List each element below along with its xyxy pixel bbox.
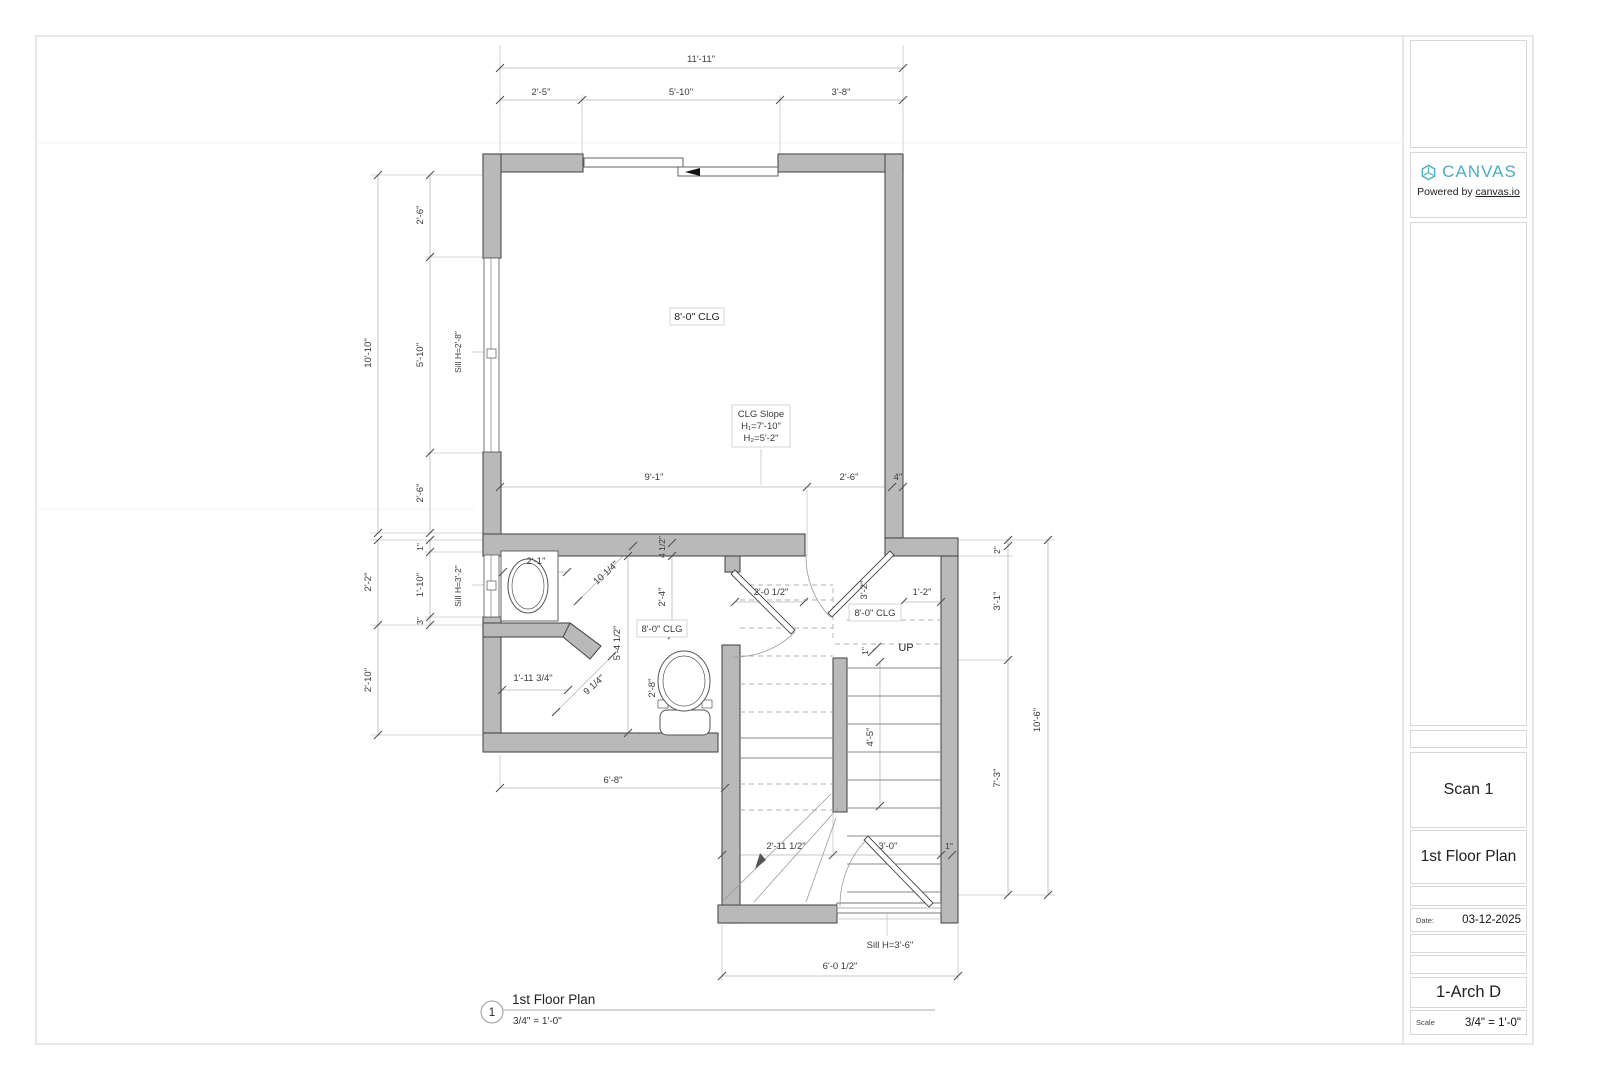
dim-toilet-w: 2'-8": [647, 679, 658, 698]
panel-sheet-title: 1st Floor Plan: [1410, 830, 1527, 884]
dim-top-a: 2'-5": [532, 87, 551, 98]
wall-angled: [563, 623, 601, 659]
dim-mid-b: 2'-6": [840, 472, 859, 483]
label-sill-left-upper: Sill H=2'-8": [453, 331, 463, 373]
sheet-title-text: 1st Floor Plan: [1421, 848, 1517, 866]
dim-bot-b: 3'-0": [879, 841, 898, 852]
dim-right-a: 2": [992, 546, 1002, 554]
drawing-scale: 3/4" = 1'-0": [513, 1016, 562, 1027]
dim-ll-c: 3": [415, 617, 425, 625]
wall-bottom: [718, 905, 837, 923]
dim-left-total: 10'-10": [363, 338, 374, 367]
label-clg-slope-h2: H₂=5'-2": [743, 433, 778, 444]
scale-value: 3/4" = 1'-0": [1465, 1017, 1521, 1029]
wall-left-a: [483, 154, 501, 258]
wall-door-stub: [725, 556, 740, 572]
dim-mid-a: 9'-1": [645, 472, 664, 483]
dim-bath-v-a: 2'-4": [657, 588, 668, 607]
label-clg-bath: 8'-0" CLG: [641, 624, 682, 635]
dim-bath-w: 1'-11 3/4": [513, 673, 552, 684]
label-clg-slope-title: CLG Slope: [738, 409, 784, 420]
window-bottom: [837, 903, 941, 919]
dim-right-total: 10'-6": [1032, 708, 1043, 732]
dim-hall-jamb: 1'-2": [913, 587, 932, 598]
label-clg-hall: 8'-0" CLG: [854, 608, 895, 619]
wall-corner: [885, 538, 958, 556]
label-clg-slope-h1: H₁=7'-10": [741, 421, 781, 432]
dim-bot-right-jamb: 1": [945, 841, 953, 851]
drawing-number: 1: [489, 1007, 495, 1019]
panel-row-spacer-3: [1410, 934, 1527, 953]
brand-name: CANVAS: [1442, 162, 1517, 182]
dim-top-b: 5'-10": [669, 87, 693, 98]
panel-row-spacer-4: [1410, 955, 1527, 974]
sheet-number-text: 1-Arch D: [1436, 983, 1501, 1002]
stair-arrowhead: [755, 853, 766, 869]
panel-sheet-number: 1-Arch D: [1410, 977, 1527, 1008]
panel-sheet-name: Scan 1: [1410, 752, 1527, 828]
dim-bath-counter: 2'-1": [527, 556, 546, 567]
panel-row-spacer-1: [1410, 730, 1527, 748]
powered-prefix: Powered by: [1417, 186, 1475, 198]
dim-ll-total-a: 2'-2": [363, 573, 374, 592]
dim-stair-nose: 1": [860, 647, 870, 655]
canvas-io-link[interactable]: canvas.io: [1476, 186, 1520, 198]
panel-brand: CANVAS Powered by canvas.io: [1410, 152, 1527, 218]
wall-hall-left: [722, 645, 740, 923]
window-left-lower: [484, 555, 499, 617]
window-sliding-top: [584, 158, 778, 176]
dim-ll-a: 1": [415, 543, 425, 551]
date-value: 03-12-2025: [1462, 914, 1521, 926]
window-left-upper: [484, 258, 499, 452]
wall-bath-bottom: [483, 733, 718, 752]
wall-bath-stub: [483, 623, 570, 637]
drawing-title: 1st Floor Plan: [512, 992, 595, 1007]
dim-bath-v-b: 5'-4 1/2": [612, 626, 623, 661]
dim-top-total: 11'-11": [687, 54, 715, 65]
wall-top-right: [778, 154, 903, 172]
dim-mid-c: 4": [894, 472, 903, 483]
panel-row-spacer-2: [1410, 886, 1527, 906]
doors: [731, 551, 933, 907]
dim-hall-door-b: 3'-2": [859, 581, 870, 600]
dim-left-b: 5'-10": [415, 343, 426, 367]
dim-bath-diag-b: 9 1/4": [582, 673, 608, 698]
powered-by: Powered by canvas.io: [1411, 186, 1526, 198]
dim-bot-a: 2'-11 1/2": [766, 841, 805, 852]
dim-left-a: 2'-6": [415, 206, 426, 225]
panel-empty-middle: [1410, 222, 1527, 726]
door-bath: [731, 570, 795, 657]
dim-bot-total: 6'-0 1/2": [823, 961, 858, 972]
dim-left-c: 2'-6": [415, 484, 426, 503]
dim-right-c: 7'-3": [992, 769, 1003, 788]
panel-date-row: Date: 03-12-2025: [1410, 908, 1527, 932]
drawing-title-block: 1 1st Floor Plan 3/4" = 1'-0": [481, 992, 935, 1027]
scale-label: Scale: [1416, 1018, 1435, 1027]
label-sill-bottom: Sill H=3'-6": [867, 940, 914, 951]
sheet-page: { "colors": { "brand_teal": "#4baec3", "…: [0, 0, 1620, 1080]
dim-bath-diag-a: 10 1/4": [592, 559, 622, 587]
sheet-name-text: Scan 1: [1444, 781, 1494, 799]
label-sill-left-lower: Sill H=3'-2": [453, 565, 463, 607]
dim-right-b: 3'-1": [992, 592, 1003, 611]
dim-bath-small: 4 1/2": [657, 536, 667, 558]
wall-stair-center: [833, 658, 847, 812]
dim-bath-width: 6'-8": [604, 775, 623, 786]
canvas-logo-icon: [1420, 164, 1437, 181]
dim-top-c: 3'-8": [832, 87, 851, 98]
label-clg-main: 8'-0" CLG: [674, 311, 719, 323]
dim-stair-run: 4'-5": [865, 728, 876, 747]
dim-ll-b: 1'-10": [415, 573, 426, 597]
wall-right-lower: [941, 556, 958, 923]
dim-ll-total-b: 2'-10": [363, 668, 374, 692]
date-label: Date:: [1416, 916, 1434, 925]
toilet: [658, 651, 712, 735]
label-up: UP: [898, 642, 913, 654]
panel-empty-top: [1410, 40, 1527, 148]
floor-plan-drawing: 11'-11" 2'-5" 5'-10" 3'-8" 10'-10" 2'-6"…: [0, 0, 1620, 1080]
panel-scale-row: Scale 3/4" = 1'-0": [1410, 1010, 1527, 1035]
dim-hall-door: 2'-0 1/2": [754, 587, 789, 598]
